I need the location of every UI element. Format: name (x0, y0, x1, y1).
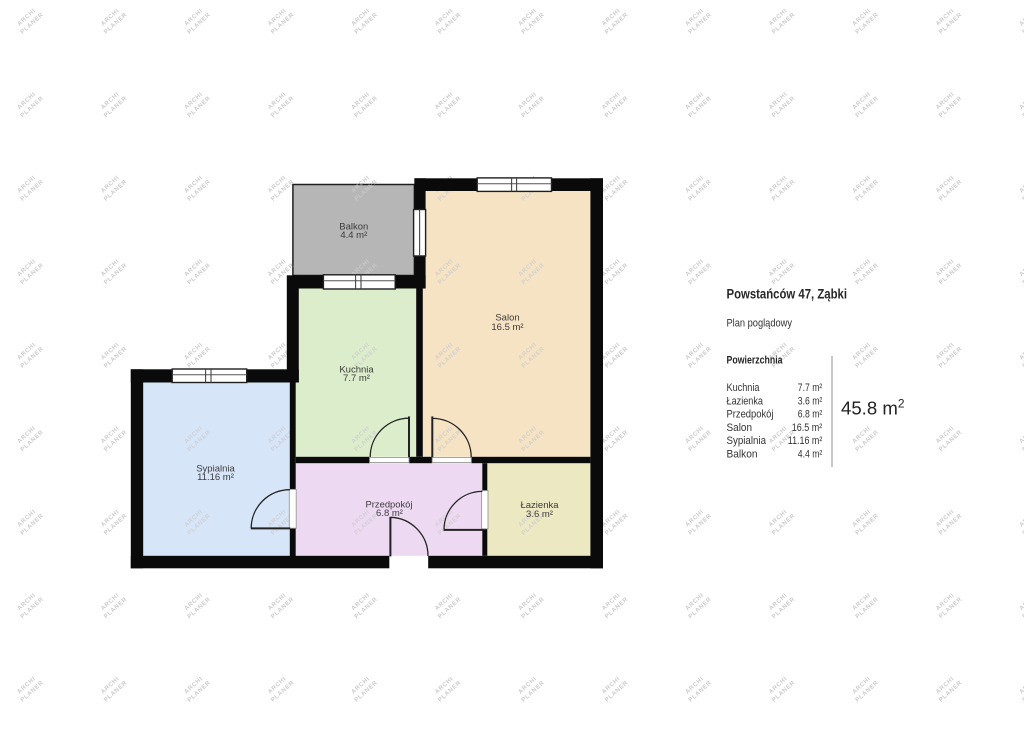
svg-text:Sypialnia: Sypialnia (727, 435, 767, 447)
svg-text:16.5 m²: 16.5 m² (792, 422, 823, 434)
svg-text:3.6 m²: 3.6 m² (798, 395, 823, 407)
svg-text:7.7 m²: 7.7 m² (343, 373, 370, 384)
svg-text:6.8 m²: 6.8 m² (798, 409, 823, 421)
svg-text:6.8 m²: 6.8 m² (376, 508, 403, 519)
svg-text:4.4 m²: 4.4 m² (798, 449, 823, 461)
svg-text:16.5 m²: 16.5 m² (491, 322, 523, 333)
svg-text:11.16 m²: 11.16 m² (197, 472, 234, 483)
svg-text:Powierzchnia: Powierzchnia (727, 355, 784, 367)
svg-text:Kuchnia: Kuchnia (727, 382, 761, 394)
svg-text:Salon: Salon (727, 422, 753, 434)
svg-text:Plan poglądowy: Plan poglądowy (727, 317, 793, 329)
svg-text:Powstańców 47, Ząbki: Powstańców 47, Ząbki (727, 287, 848, 302)
svg-text:4.4 m²: 4.4 m² (340, 230, 367, 241)
svg-text:11.16 m²: 11.16 m² (788, 435, 823, 447)
svg-text:45.8 m2: 45.8 m2 (841, 397, 905, 419)
svg-text:Balkon: Balkon (727, 449, 758, 461)
svg-text:3.6 m²: 3.6 m² (526, 509, 553, 520)
svg-text:7.7 m²: 7.7 m² (798, 382, 823, 394)
svg-text:Łazienka: Łazienka (727, 395, 764, 407)
svg-text:Przedpokój: Przedpokój (727, 409, 774, 421)
